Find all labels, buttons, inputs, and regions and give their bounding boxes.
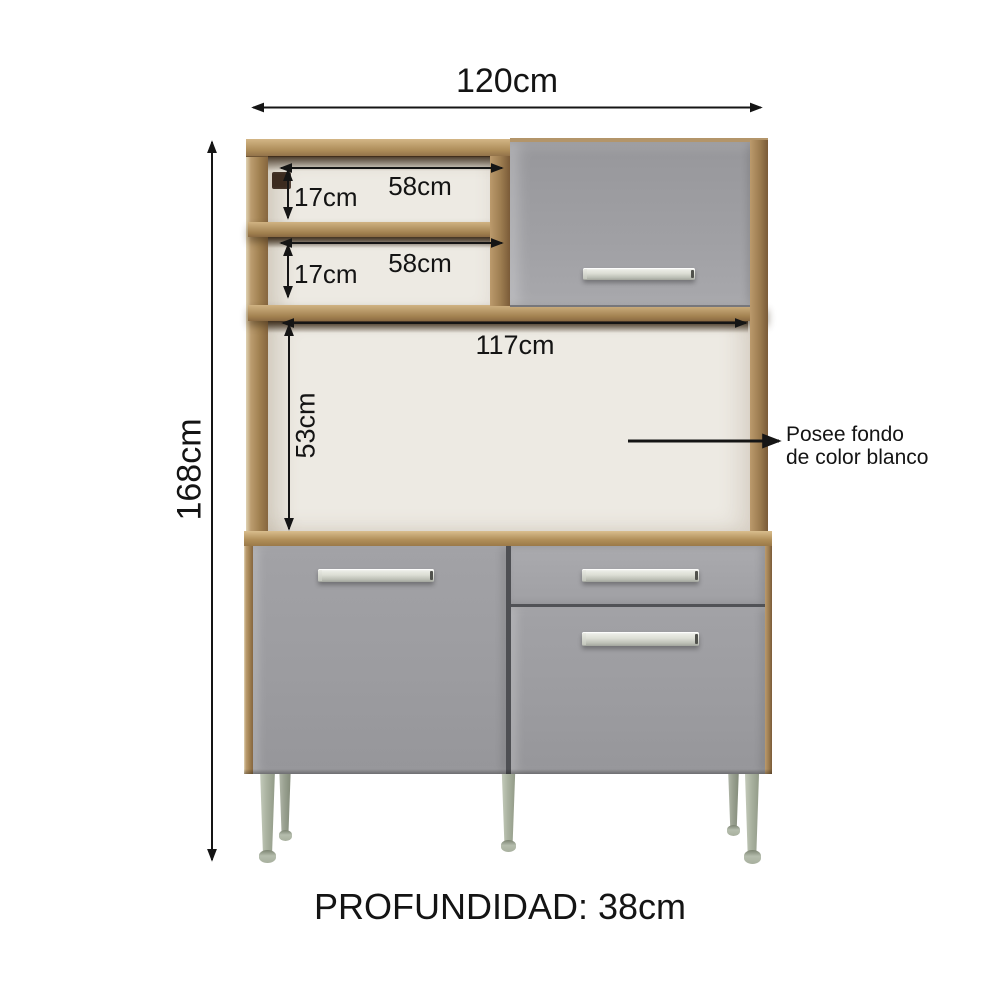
- furniture-dimension-diagram: 120cm 168cm 58cm 17cm 58cm 17cm 117cm 53…: [0, 0, 1000, 1000]
- dimension-arrows-layer: [0, 0, 1000, 1000]
